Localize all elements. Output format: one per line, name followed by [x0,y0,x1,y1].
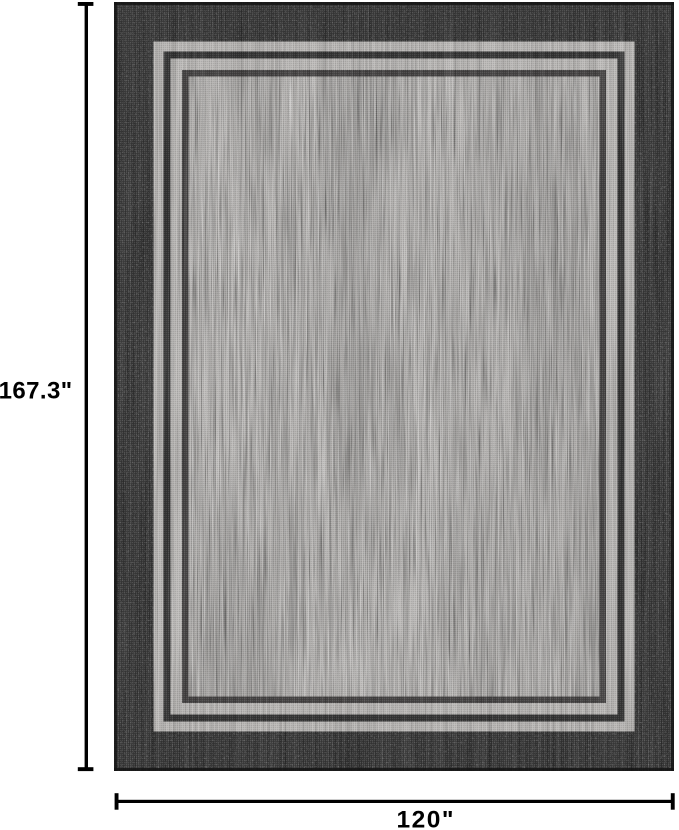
svg-text:167.3": 167.3" [0,378,73,405]
svg-text:120": 120" [397,807,456,830]
